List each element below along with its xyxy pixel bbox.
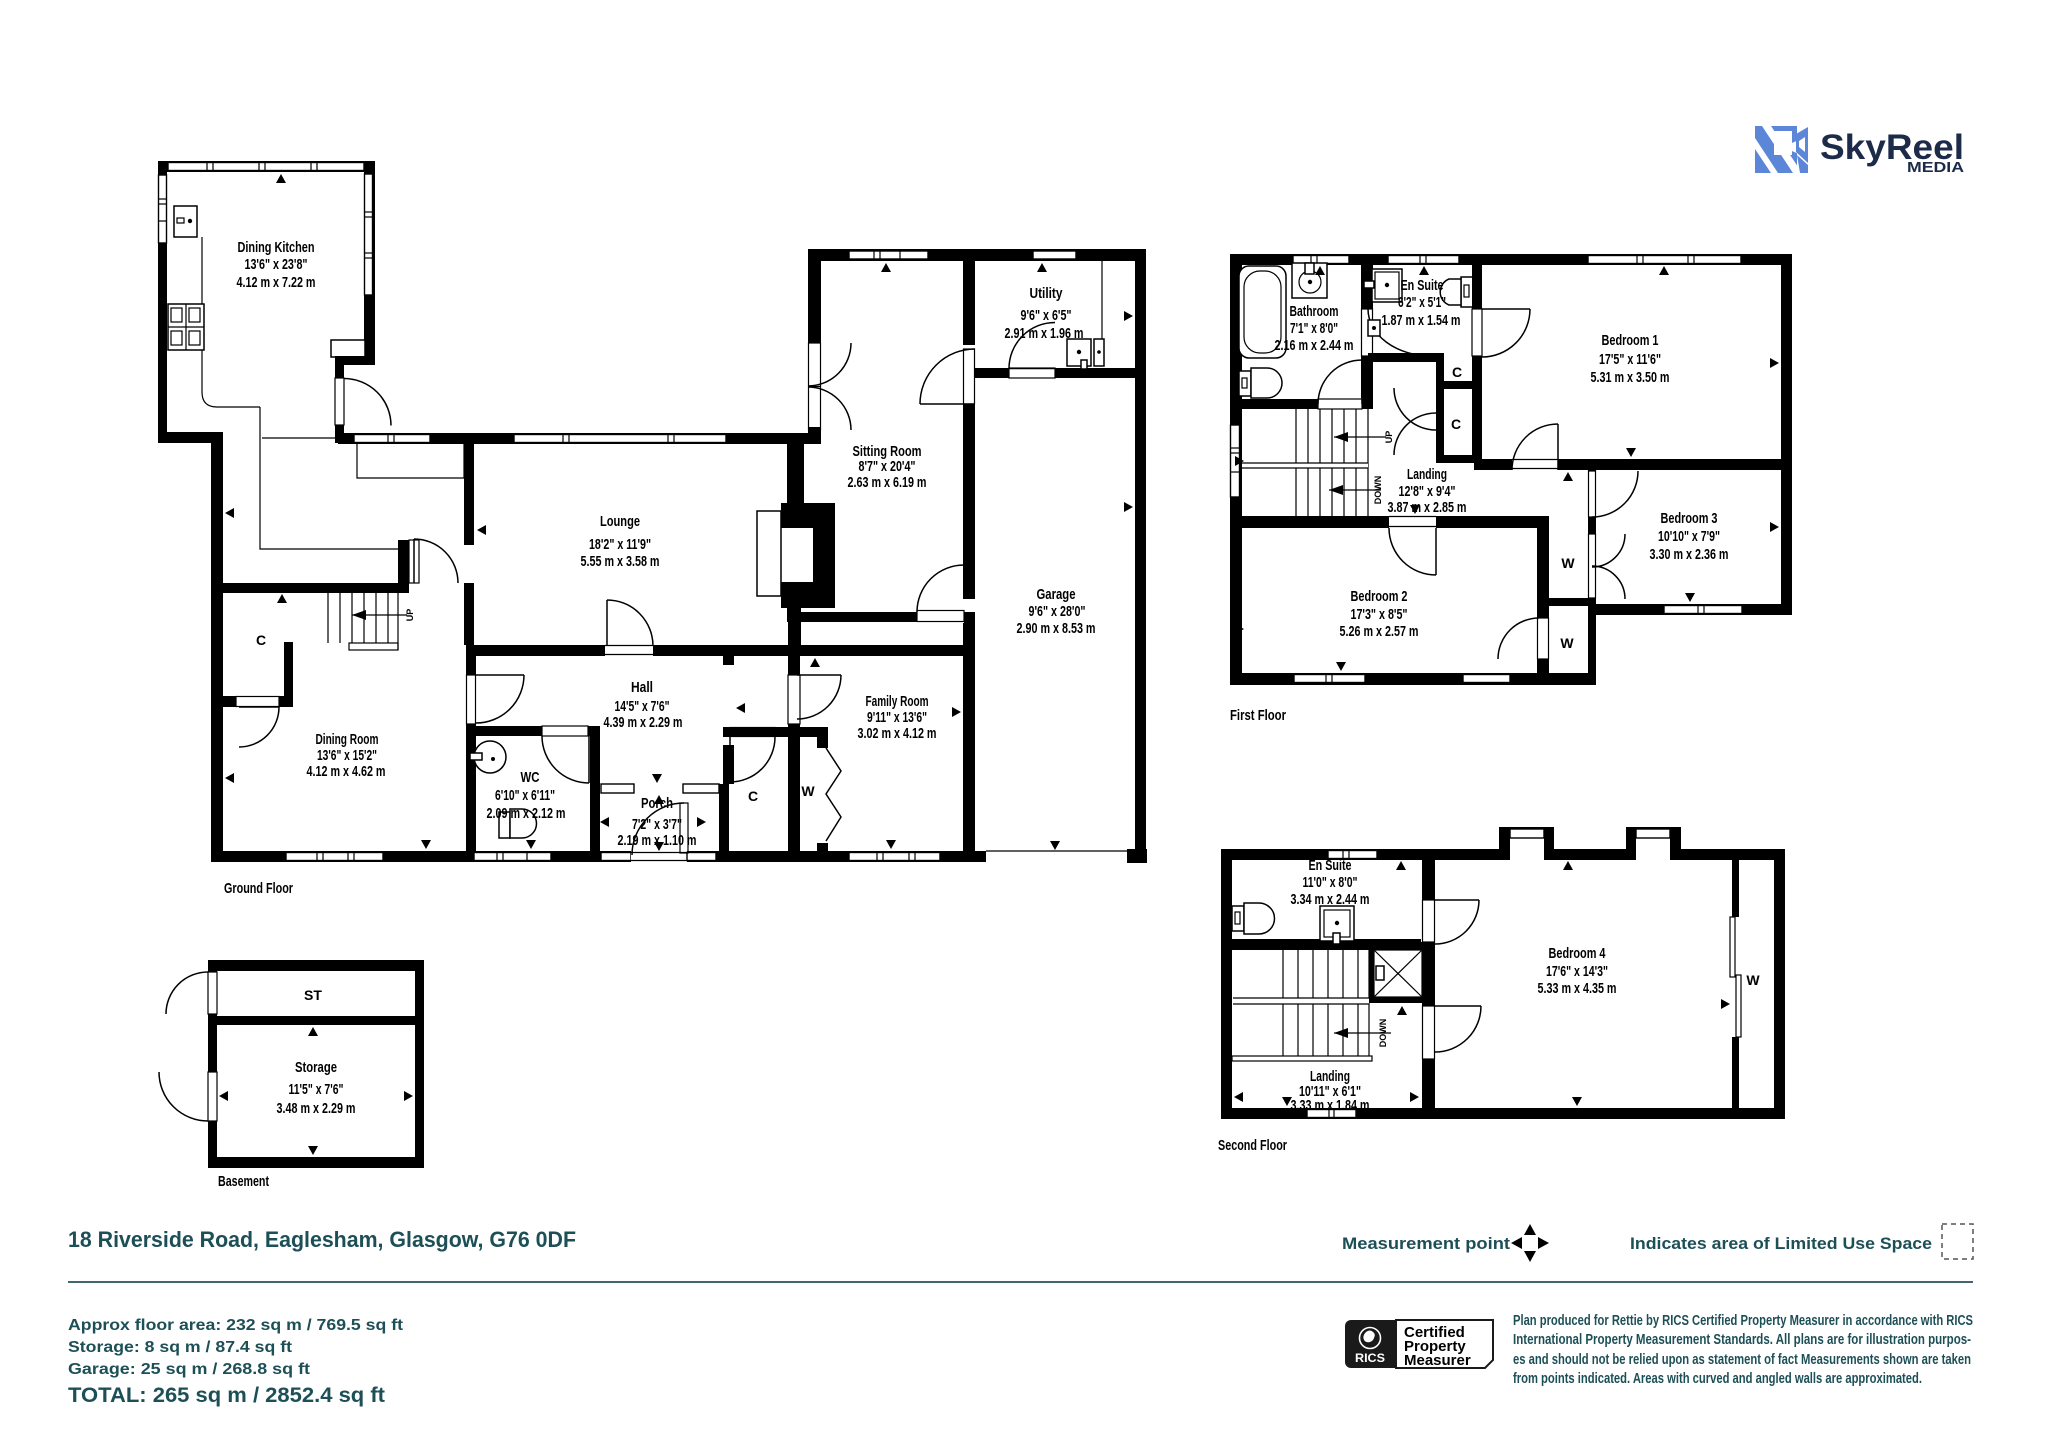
svg-text:7'1" x 8'0": 7'1" x 8'0": [1290, 320, 1338, 337]
svg-text:Bedroom 2: Bedroom 2: [1351, 588, 1408, 605]
svg-text:18 Riverside Road, Eaglesham,: 18 Riverside Road, Eaglesham, Glasgow, G…: [68, 1227, 576, 1252]
svg-text:9'6" x 28'0": 9'6" x 28'0": [1029, 603, 1086, 620]
svg-text:C: C: [256, 632, 266, 648]
svg-text:ST: ST: [304, 987, 322, 1003]
svg-text:RICS: RICS: [1355, 1351, 1385, 1365]
svg-text:1.87 m x 1.54 m: 1.87 m x 1.54 m: [1382, 312, 1461, 329]
svg-text:13'6" x 23'8": 13'6" x 23'8": [245, 256, 308, 273]
svg-text:MEDIA: MEDIA: [1907, 159, 1964, 176]
svg-text:Bedroom 3: Bedroom 3: [1661, 510, 1718, 527]
svg-text:4.12 m x 4.62 m: 4.12 m x 4.62 m: [307, 763, 386, 780]
svg-text:2.63 m x 6.19 m: 2.63 m x 6.19 m: [848, 474, 927, 491]
svg-text:Storage: Storage: [295, 1059, 337, 1076]
svg-text:C: C: [1452, 364, 1462, 380]
svg-text:En Suite: En Suite: [1309, 857, 1352, 874]
svg-text:Hall: Hall: [631, 679, 653, 696]
svg-text:18'2" x 11'9": 18'2" x 11'9": [589, 536, 651, 553]
svg-text:17'5" x 11'6": 17'5" x 11'6": [1599, 351, 1661, 368]
svg-text:2.90 m x 8.53 m: 2.90 m x 8.53 m: [1017, 620, 1096, 637]
svg-text:Dining Kitchen: Dining Kitchen: [238, 239, 315, 256]
svg-text:Garage: 25 sq m / 268.8 sq ft: Garage: 25 sq m / 268.8 sq ft: [68, 1361, 311, 1378]
svg-text:Ground Floor: Ground Floor: [224, 880, 293, 897]
svg-text:C: C: [748, 788, 758, 804]
svg-text:3.30 m x 2.36 m: 3.30 m x 2.36 m: [1650, 546, 1729, 563]
svg-text:Bathroom: Bathroom: [1290, 303, 1339, 320]
svg-text:First Floor: First Floor: [1230, 707, 1286, 724]
svg-text:3.34 m x 2.44 m: 3.34 m x 2.44 m: [1291, 891, 1370, 908]
svg-text:4.39 m x 2.29 m: 4.39 m x 2.29 m: [604, 714, 683, 731]
svg-text:W: W: [801, 783, 815, 799]
svg-text:Dining Room: Dining Room: [316, 731, 379, 748]
svg-text:Second Floor: Second Floor: [1218, 1137, 1287, 1154]
svg-text:C: C: [1451, 416, 1461, 432]
svg-text:3.33 m x 1.84 m: 3.33 m x 1.84 m: [1291, 1097, 1370, 1114]
svg-text:6'10" x 6'11": 6'10" x 6'11": [495, 787, 555, 804]
svg-text:12'8" x 9'4": 12'8" x 9'4": [1399, 483, 1456, 500]
svg-text:4.12 m x 7.22 m: 4.12 m x 7.22 m: [237, 274, 316, 291]
svg-text:Indicates area of Limited Use: Indicates area of Limited Use Space: [1630, 1234, 1932, 1253]
svg-text:17'3" x 8'5": 17'3" x 8'5": [1351, 606, 1408, 623]
svg-text:TOTAL: 265 sq m / 2852.4 sq ft: TOTAL: 265 sq m / 2852.4 sq ft: [68, 1384, 385, 1407]
svg-text:3.48 m x 2.29 m: 3.48 m x 2.29 m: [277, 1100, 356, 1117]
svg-text:Storage: 8 sq m / 87.4 sq ft: Storage: 8 sq m / 87.4 sq ft: [68, 1339, 293, 1356]
svg-text:UP: UP: [1384, 431, 1394, 444]
svg-text:DOWN: DOWN: [1373, 476, 1383, 505]
svg-text:7'2" x 3'7": 7'2" x 3'7": [632, 816, 682, 833]
svg-text:International Property Measur: International Property Measurement Stand…: [1513, 1332, 1971, 1348]
svg-text:Measurer: Measurer: [1404, 1352, 1471, 1369]
svg-text:Bedroom 4: Bedroom 4: [1549, 945, 1606, 962]
svg-text:13'6" x 15'2": 13'6" x 15'2": [317, 747, 377, 764]
svg-text:W: W: [1560, 635, 1574, 651]
svg-text:DOWN: DOWN: [1378, 1019, 1388, 1048]
svg-text:WC: WC: [521, 769, 540, 786]
svg-text:Garage: Garage: [1037, 586, 1076, 603]
svg-text:5.26 m x 2.57 m: 5.26 m x 2.57 m: [1340, 623, 1419, 640]
svg-text:from points indicated. Areas w: from points indicated. Areas with curved…: [1513, 1371, 1922, 1387]
svg-text:10'10" x 7'9": 10'10" x 7'9": [1658, 528, 1720, 545]
svg-text:Bedroom 1: Bedroom 1: [1602, 332, 1659, 349]
svg-text:11'0" x 8'0": 11'0" x 8'0": [1303, 874, 1358, 891]
svg-text:5.55 m x 3.58 m: 5.55 m x 3.58 m: [581, 553, 660, 570]
svg-text:Approx floor area: 232 sq m /: Approx floor area: 232 sq m / 769.5 sq f…: [68, 1317, 404, 1334]
svg-text:Measurement point: Measurement point: [1342, 1234, 1510, 1253]
svg-text:Plan produced for Rettie by RI: Plan produced for Rettie by RICS Certifi…: [1513, 1313, 1973, 1329]
svg-text:Family Room: Family Room: [866, 693, 929, 710]
svg-text:W: W: [1746, 972, 1760, 988]
svg-text:2.16 m x 2.44 m: 2.16 m x 2.44 m: [1275, 337, 1354, 354]
svg-text:En Suite: En Suite: [1401, 277, 1444, 294]
svg-text:2.91 m x 1.96 m: 2.91 m x 1.96 m: [1005, 325, 1084, 342]
svg-text:5.33 m x 4.35 m: 5.33 m x 4.35 m: [1538, 980, 1617, 997]
svg-text:W: W: [1561, 555, 1575, 571]
svg-text:17'6" x 14'3": 17'6" x 14'3": [1546, 963, 1608, 980]
svg-text:3.02 m x 4.12 m: 3.02 m x 4.12 m: [858, 725, 937, 742]
svg-text:8'7" x 20'4": 8'7" x 20'4": [859, 458, 916, 475]
svg-text:Utility: Utility: [1030, 285, 1064, 302]
svg-text:Lounge: Lounge: [600, 513, 640, 530]
svg-text:14'5" x 7'6": 14'5" x 7'6": [615, 698, 670, 715]
svg-text:UP: UP: [405, 609, 415, 622]
svg-text:5.31 m x 3.50 m: 5.31 m x 3.50 m: [1591, 369, 1670, 386]
svg-text:9'6" x 6'5": 9'6" x 6'5": [1021, 307, 1072, 324]
svg-text:6'2" x 5'1": 6'2" x 5'1": [1398, 294, 1446, 311]
svg-text:Basement: Basement: [218, 1173, 269, 1190]
svg-text:es and should not be relied up: es and should not be relied upon as stat…: [1513, 1352, 1971, 1368]
svg-text:Landing: Landing: [1407, 466, 1447, 483]
svg-text:2.09 m x 2.12 m: 2.09 m x 2.12 m: [487, 805, 566, 822]
svg-text:9'11" x 13'6": 9'11" x 13'6": [867, 709, 927, 726]
svg-text:11'5" x 7'6": 11'5" x 7'6": [289, 1081, 344, 1098]
svg-text:3.87 m x 2.85 m: 3.87 m x 2.85 m: [1388, 499, 1467, 516]
